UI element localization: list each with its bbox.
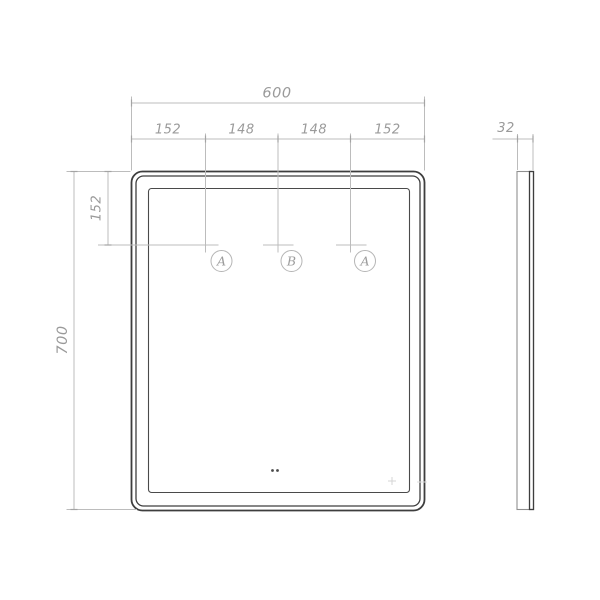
dim-label-segment-4: 152 — [374, 123, 400, 138]
dim-label-top-offset: 152 — [90, 195, 105, 221]
marker-label-3: A — [359, 254, 369, 269]
front-view — [132, 172, 428, 511]
dim-label-segment-3: 148 — [301, 123, 327, 138]
marker-balloons: A B A — [211, 251, 376, 272]
faint-reference-cross — [388, 477, 396, 485]
dim-label-segment-2: 148 — [228, 123, 254, 138]
sensor-dot-right — [276, 469, 279, 472]
dimension-ticks — [71, 100, 534, 510]
marker-label-1: A — [216, 254, 226, 269]
technical-drawing-canvas: 600 152 148 148 152 700 152 32 A B A — [0, 0, 600, 600]
marker-label-2: B — [286, 254, 296, 269]
profile-glass-outline — [530, 172, 534, 510]
dim-label-overall-width: 600 — [262, 86, 291, 102]
profile-body-outline — [517, 172, 534, 510]
mirror-inner-led-border — [149, 189, 410, 493]
mirror-dimension-drawing: 600 152 148 148 152 700 152 32 A B A — [0, 0, 600, 600]
dim-label-segment-1: 152 — [155, 123, 181, 138]
dim-label-thickness: 32 — [497, 121, 515, 136]
side-view — [517, 172, 534, 510]
sensor-dot-left — [271, 469, 274, 472]
dim-label-overall-height: 700 — [55, 325, 71, 354]
